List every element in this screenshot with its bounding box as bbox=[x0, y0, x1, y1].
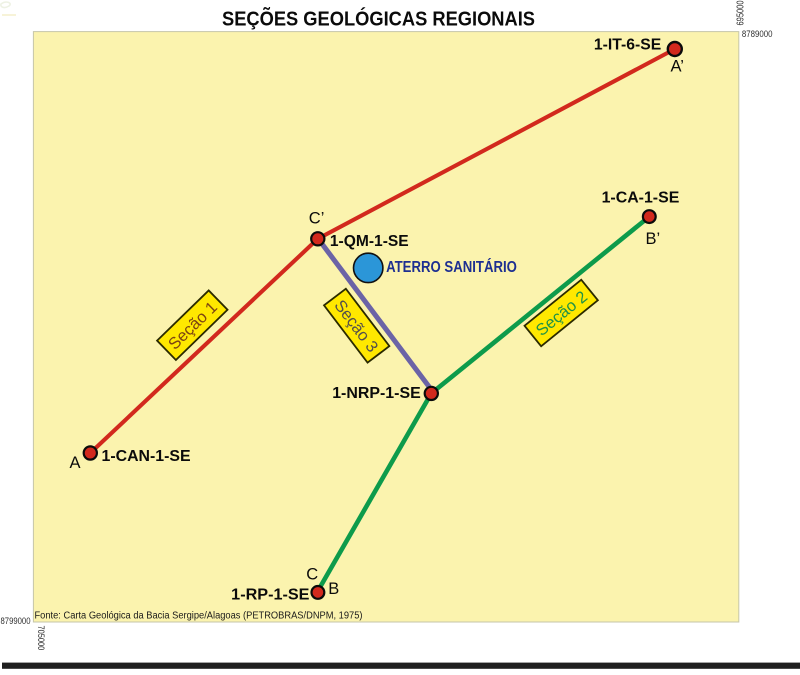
svg-text:695000: 695000 bbox=[736, 0, 747, 25]
svg-text:C’: C’ bbox=[309, 210, 325, 228]
svg-text:Fonte: Carta Geológica da Baci: Fonte: Carta Geológica da Bacia Sergipe/… bbox=[35, 611, 363, 622]
svg-text:A’: A’ bbox=[671, 58, 684, 76]
svg-text:SEÇÕES GEOLÓGICAS REGIONAIS: SEÇÕES GEOLÓGICAS REGIONAIS bbox=[222, 7, 535, 31]
svg-text:1-NRP-1-SE: 1-NRP-1-SE bbox=[332, 385, 421, 402]
svg-text:1-CA-1-SE: 1-CA-1-SE bbox=[602, 190, 680, 207]
svg-text:1-CAN-1-SE: 1-CAN-1-SE bbox=[102, 448, 191, 465]
svg-text:1-IT-6-SE: 1-IT-6-SE bbox=[594, 36, 662, 53]
svg-text:1-QM-1-SE: 1-QM-1-SE bbox=[330, 233, 409, 250]
svg-text:B: B bbox=[328, 580, 339, 598]
svg-text:8799000: 8799000 bbox=[1, 616, 31, 627]
svg-text:B’: B’ bbox=[646, 230, 661, 248]
svg-text:8789000: 8789000 bbox=[742, 29, 773, 40]
svg-text:1-RP-1-SE: 1-RP-1-SE bbox=[231, 586, 310, 603]
svg-text:705000: 705000 bbox=[35, 626, 46, 651]
svg-text:C: C bbox=[306, 566, 318, 584]
svg-text:A: A bbox=[70, 454, 81, 472]
svg-text:ATERRO SANITÁRIO: ATERRO SANITÁRIO bbox=[386, 259, 517, 276]
